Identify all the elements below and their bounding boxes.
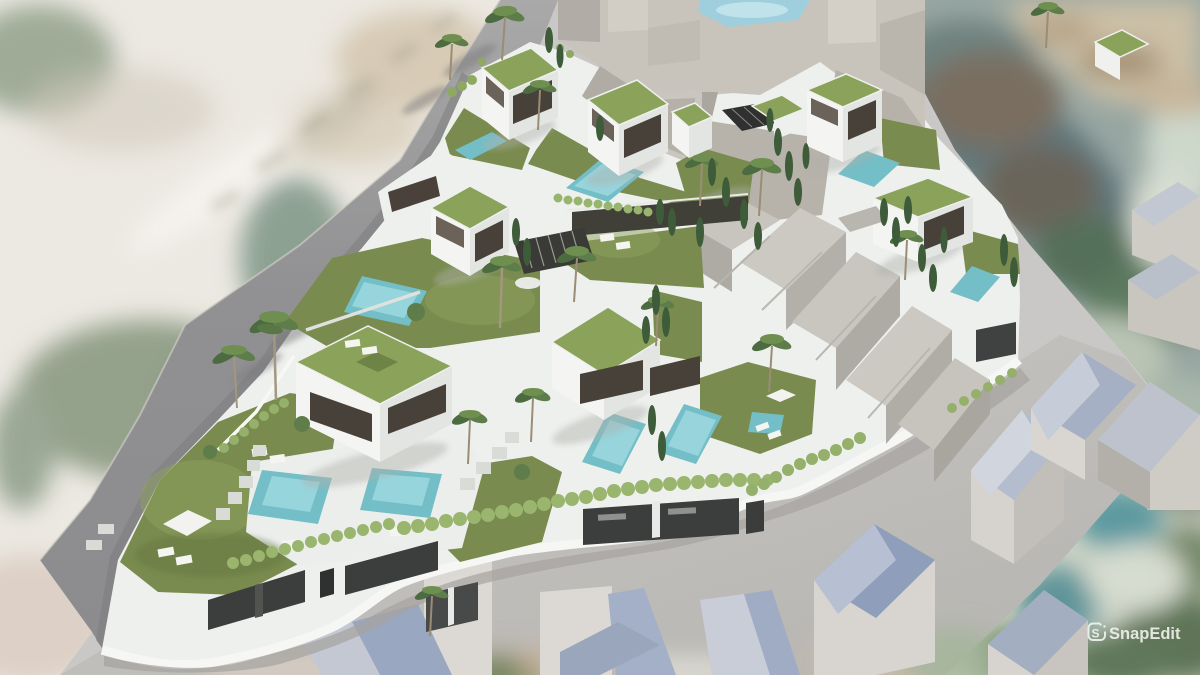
- svg-text:S: S: [1092, 627, 1100, 641]
- svg-text:SnapEdit: SnapEdit: [1109, 625, 1181, 643]
